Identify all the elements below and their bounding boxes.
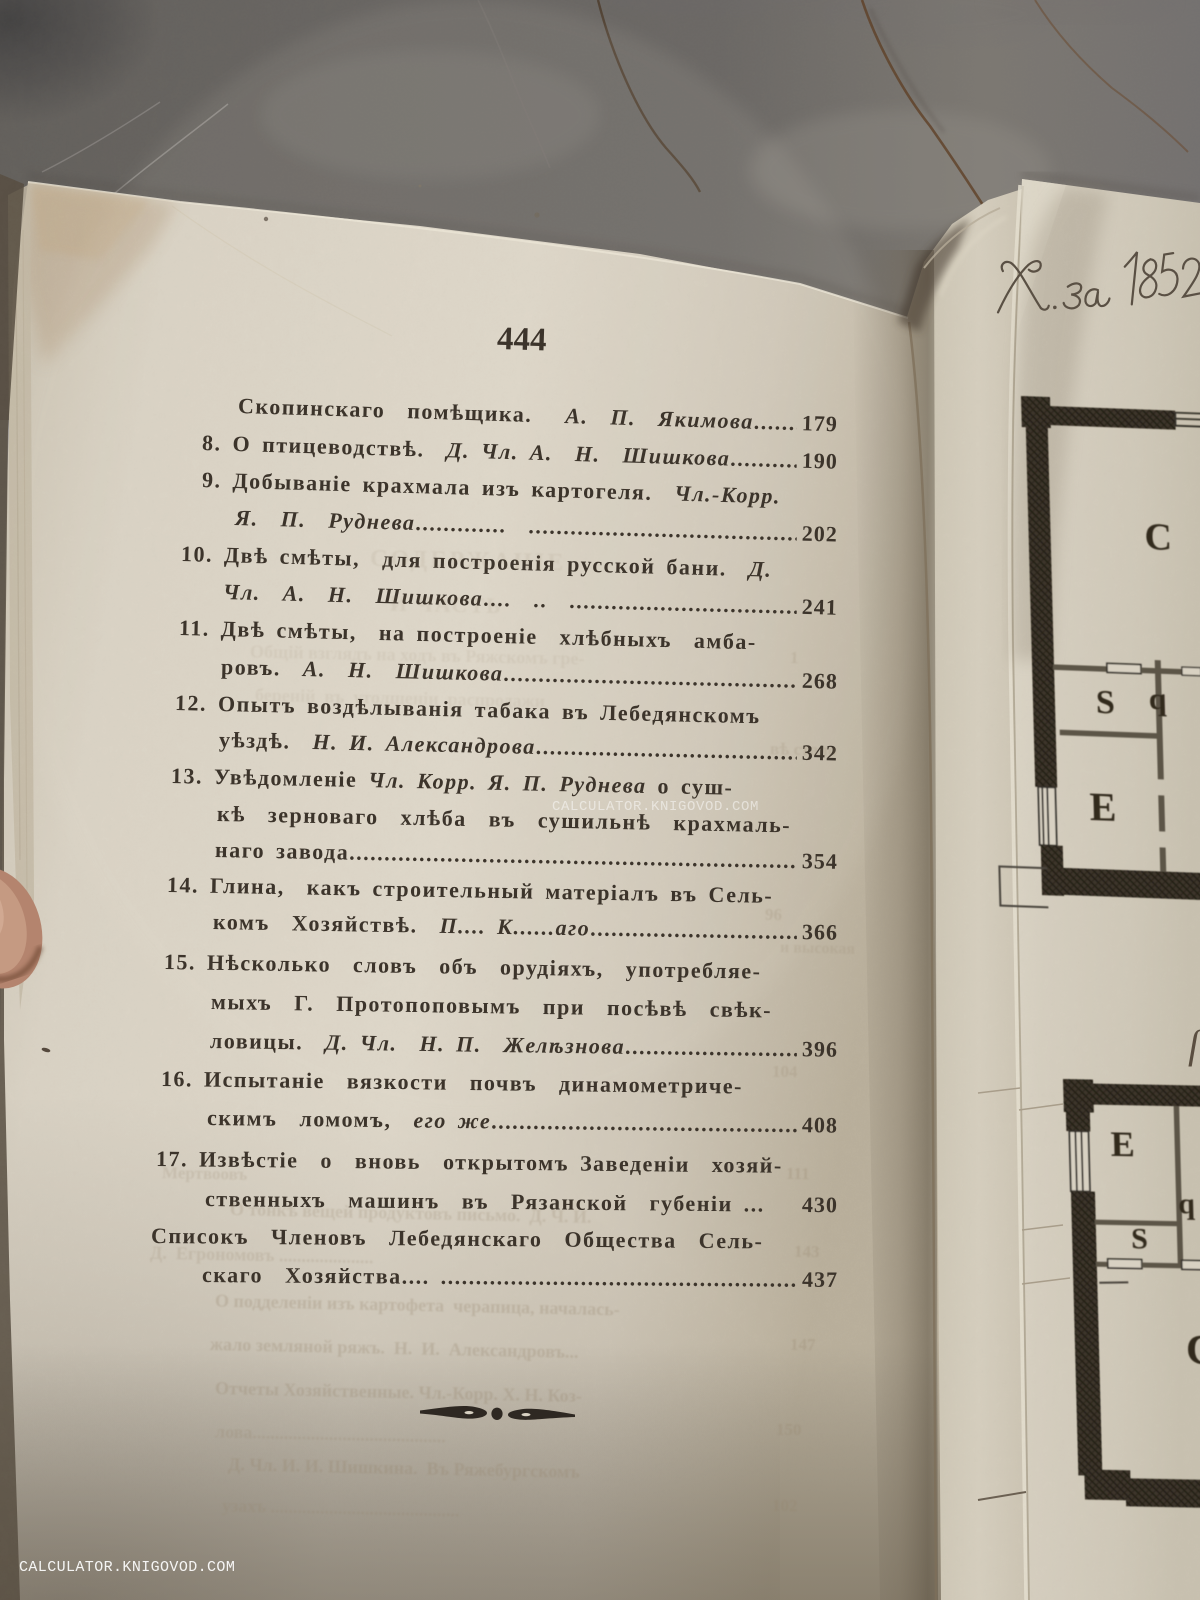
svg-text:C: C xyxy=(1144,516,1173,559)
svg-text:S: S xyxy=(1095,684,1115,722)
svg-text:ſ: ſ xyxy=(1188,1022,1200,1067)
svg-text:S: S xyxy=(1131,1222,1149,1255)
svg-text:q: q xyxy=(1148,680,1167,717)
svg-text:E: E xyxy=(1110,1124,1135,1164)
svg-text:C: C xyxy=(1185,1327,1200,1374)
svg-text:q: q xyxy=(1178,1187,1196,1220)
svg-text:E: E xyxy=(1089,784,1117,830)
